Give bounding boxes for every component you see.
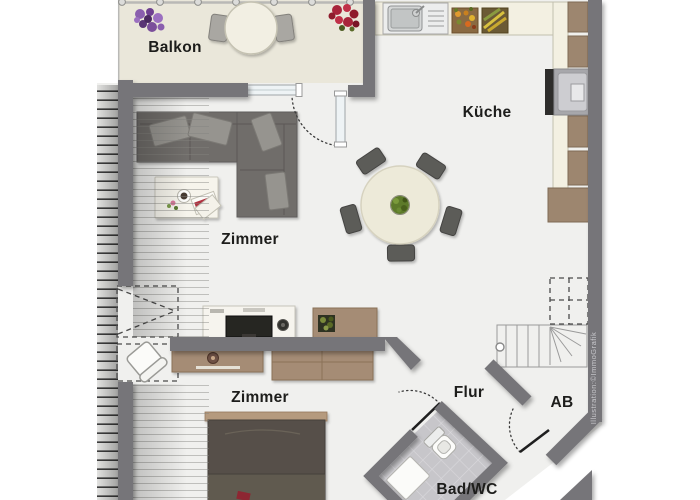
tv-sideboard	[203, 306, 295, 339]
double-bed	[205, 412, 327, 500]
round-table	[225, 2, 277, 54]
label-bathroom: Bad/WC	[436, 481, 497, 498]
left-wall-upper	[118, 80, 133, 286]
wall-shelf	[313, 308, 377, 338]
kitchen-sink-icon	[383, 3, 448, 34]
table-plant-icon	[391, 196, 410, 215]
kitchen-counter-top	[375, 2, 557, 35]
fruit-basket-icon	[452, 7, 478, 33]
label-bedroom: Zimmer	[231, 389, 289, 406]
illustration-credit: Illustration:©ImmoGrafik	[589, 332, 598, 425]
stair-newel-post	[496, 343, 504, 351]
label-balcony: Balkon	[148, 39, 201, 56]
shelf-plant-icon	[318, 315, 335, 332]
label-hallway: Flur	[454, 384, 484, 401]
floorplan-page: Balkon Küche Zimmer Zimmer Flur AB Bad/W…	[0, 0, 700, 500]
label-kitchen: Küche	[463, 104, 512, 121]
vegetable-basket-icon	[482, 8, 508, 33]
left-wall-lower	[118, 382, 133, 500]
label-storage: AB	[551, 394, 574, 411]
roof-slope-hatch-strip	[97, 85, 118, 500]
floorplan-svg: Balkon Küche Zimmer Zimmer Flur AB Bad/W…	[0, 0, 700, 500]
middle-wall	[170, 337, 385, 351]
oven-icon	[545, 69, 591, 115]
label-living-room: Zimmer	[221, 231, 279, 248]
roof-slope-overlay	[133, 97, 209, 500]
balcony-wall	[118, 83, 248, 97]
tv-icon	[226, 316, 272, 337]
kitchen-tall-cabinet	[548, 188, 590, 222]
